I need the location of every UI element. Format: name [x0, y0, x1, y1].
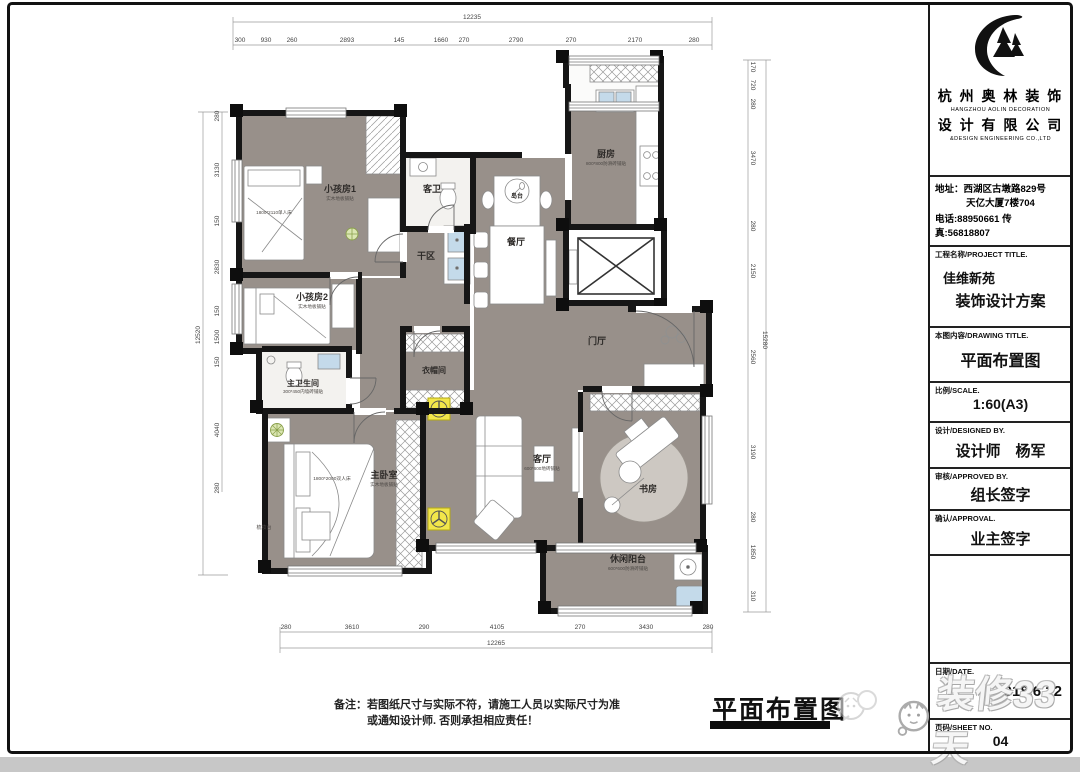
svg-text:4105: 4105 — [490, 624, 505, 631]
sheet-no-label: 页码/SHEET NO. — [935, 722, 1066, 733]
svg-text:150: 150 — [214, 215, 221, 226]
company-logo — [935, 13, 1066, 84]
svg-text:1850: 1850 — [749, 545, 756, 560]
room-label-dry-area: 干区 — [417, 251, 435, 261]
remarks-note: 备注： 若图纸尺寸与实际不符，请施工人员以实际尺寸为准 或通知设计师. 否则承担… — [334, 698, 694, 730]
designed-by-label: 设计/DESIGNED BY. — [935, 425, 1066, 436]
svg-text:310: 310 — [749, 591, 756, 602]
room-label-balcony: 休闲阳台 — [609, 553, 646, 564]
svg-text:150: 150 — [214, 305, 221, 316]
svg-text:280: 280 — [689, 37, 700, 44]
room-label-kids1: 小孩房1 — [323, 183, 356, 194]
company-name-en2: &DESIGN ENGINEERING CO.,LTD — [935, 136, 1066, 142]
company-address-line2: 天亿大厦7楼704 — [935, 197, 1066, 211]
svg-text:170: 170 — [749, 62, 756, 73]
room-label-kids2: 小孩房2 — [295, 291, 328, 302]
svg-text:270: 270 — [575, 624, 586, 631]
svg-text:4040: 4040 — [214, 422, 221, 437]
remarks-text: 若图纸尺寸与实际不符，请施工人员以实际尺寸为准 或通知设计师. 否则承担相应责任… — [367, 698, 620, 730]
svg-text:930: 930 — [261, 37, 272, 44]
project-name2: 装饰设计方案 — [935, 290, 1066, 311]
svg-text:3430: 3430 — [639, 624, 654, 631]
svg-text:280: 280 — [749, 99, 756, 110]
svg-text:280: 280 — [703, 624, 714, 631]
date-section: 日期/DATE. 2018.6.22 — [930, 664, 1071, 720]
room-label-living: 客厅 — [532, 453, 551, 464]
svg-text:300*450内墙砖铺贴: 300*450内墙砖铺贴 — [283, 388, 323, 395]
title-underline-bar — [710, 721, 830, 729]
title-block: 杭 州 奥 林 装 饰 HANGZHOU AOLIN DECORATION 设 … — [928, 5, 1071, 752]
dim-bottom-total: 12265 — [487, 640, 505, 647]
svg-text:800*800防滑砖铺贴: 800*800防滑砖铺贴 — [586, 160, 626, 167]
watermark-cat-icon-small — [833, 686, 879, 731]
approved-by-label: 审核/APPROVED BY. — [935, 471, 1066, 482]
svg-text:2170: 2170 — [628, 37, 643, 44]
scale-label: 比例/SCALE. — [935, 385, 1066, 396]
date-value: 2018.6.22 — [935, 683, 1066, 700]
svg-text:3470: 3470 — [749, 151, 756, 166]
room-label-master: 主卧室 — [370, 469, 397, 480]
svg-text:600*600防滑砖铺贴: 600*600防滑砖铺贴 — [608, 565, 648, 572]
scanned-drawing-sheet: 12235 300 930 260 2893 145 1660 270 2790… — [0, 0, 1080, 757]
floor-plan: 12235 300 930 260 2893 145 1660 270 2790… — [0, 0, 1080, 757]
svg-text:2790: 2790 — [509, 37, 524, 44]
scale-value: 1:60(A3) — [935, 396, 1066, 412]
company-section: 杭 州 奥 林 装 饰 HANGZHOU AOLIN DECORATION 设 … — [930, 5, 1071, 177]
svg-text:3190: 3190 — [749, 445, 756, 460]
svg-text:280: 280 — [749, 512, 756, 523]
drawing-title: 平面布置图 — [935, 347, 1066, 371]
svg-text:3610: 3610 — [345, 624, 360, 631]
approval-label: 确认/APPROVAL. — [935, 513, 1066, 524]
svg-text:600*600地砖铺贴: 600*600地砖铺贴 — [524, 465, 560, 472]
approval-name: 业主签字 — [935, 528, 1066, 549]
svg-text:2150: 2150 — [749, 264, 756, 279]
svg-text:实木地板铺贴: 实木地板铺贴 — [326, 195, 354, 202]
project-title-section: 工程名称/PROJECT TITLE. 佳维新苑 装饰设计方案 — [930, 247, 1071, 328]
svg-text:290: 290 — [419, 624, 430, 631]
svg-text:270: 270 — [459, 37, 470, 44]
kids-bed-label: 1800*2110单人床 — [256, 209, 292, 216]
company-address-line1: 地址：西湖区古墩路829号 — [935, 183, 1066, 197]
room-label-kitchen: 厨房 — [597, 148, 615, 159]
sheet-no-section: 页码/SHEET NO. 04 — [930, 720, 1071, 752]
svg-text:3130: 3130 — [214, 162, 221, 177]
approver-name: 组长签字 — [935, 484, 1066, 505]
company-name-cn: 杭 州 奥 林 装 饰 — [935, 86, 1066, 106]
svg-text:720: 720 — [749, 80, 756, 91]
room-label-cloakroom: 衣帽间 — [422, 365, 446, 375]
svg-text:280: 280 — [214, 482, 221, 493]
approval-section: 确认/APPROVAL. 业主签字 — [930, 511, 1071, 556]
sheet-no-value: 04 — [935, 733, 1066, 749]
project-title-label: 工程名称/PROJECT TITLE. — [935, 249, 1066, 260]
project-name: 佳维新苑 — [935, 268, 1066, 287]
drawing-title-section: 本图内容/DRAWING TITLE. 平面布置图 — [930, 328, 1071, 383]
svg-text:300: 300 — [235, 37, 246, 44]
master-bed-label: 1800*2000双人床 — [313, 475, 351, 482]
room-label-foyer: 门厅 — [588, 335, 606, 346]
dresser-label: 梳妆台 — [256, 524, 271, 531]
svg-text:145: 145 — [394, 37, 405, 44]
company-name-cn2: 设 计 有 限 公 司 — [935, 115, 1066, 135]
date-label: 日期/DATE. — [935, 666, 1066, 677]
approved-by-section: 审核/APPROVED BY. 组长签字 — [930, 469, 1071, 511]
svg-text:270: 270 — [566, 37, 577, 44]
svg-text:1660: 1660 — [434, 37, 449, 44]
room-label-dining: 餐厅 — [506, 236, 525, 247]
svg-text:260: 260 — [287, 37, 298, 44]
svg-text:280: 280 — [749, 221, 756, 232]
room-label-island: 岛台 — [511, 192, 523, 200]
dim-right-total: 15280 — [761, 331, 768, 349]
address-section: 地址：西湖区古墩路829号 天亿大厦7楼704 电话:88950661 传真:5… — [930, 177, 1071, 247]
drawing-title-label: 本图内容/DRAWING TITLE. — [935, 330, 1066, 341]
designed-by-section: 设计/DESIGNED BY. 设计师 杨军 — [930, 423, 1071, 469]
designer-name: 设计师 杨军 — [935, 440, 1066, 461]
room-label-guest-bath: 客卫 — [422, 183, 441, 194]
svg-text:280: 280 — [214, 110, 221, 121]
blank-section — [930, 556, 1071, 664]
remarks-label: 备注： — [334, 698, 367, 730]
dim-top-total: 12235 — [463, 14, 481, 21]
svg-text:1500: 1500 — [214, 329, 221, 344]
room-label-study: 书房 — [639, 483, 657, 494]
dim-left-total: 12520 — [195, 326, 202, 344]
svg-text:150: 150 — [214, 356, 221, 367]
svg-text:280: 280 — [281, 624, 292, 631]
svg-text:实木地板铺贴: 实木地板铺贴 — [370, 481, 398, 488]
svg-text:实木地板铺贴: 实木地板铺贴 — [298, 303, 326, 310]
svg-text:2893: 2893 — [340, 37, 355, 44]
scale-section: 比例/SCALE. 1:60(A3) — [930, 383, 1071, 423]
company-name-en: HANGZHOU AOLIN DECORATION — [935, 107, 1066, 113]
company-phone: 电话:88950661 传真:56818807 — [935, 213, 1066, 242]
room-label-master-bath: 主卫生间 — [287, 378, 319, 388]
svg-text:2830: 2830 — [214, 259, 221, 274]
svg-text:2560: 2560 — [749, 350, 756, 365]
